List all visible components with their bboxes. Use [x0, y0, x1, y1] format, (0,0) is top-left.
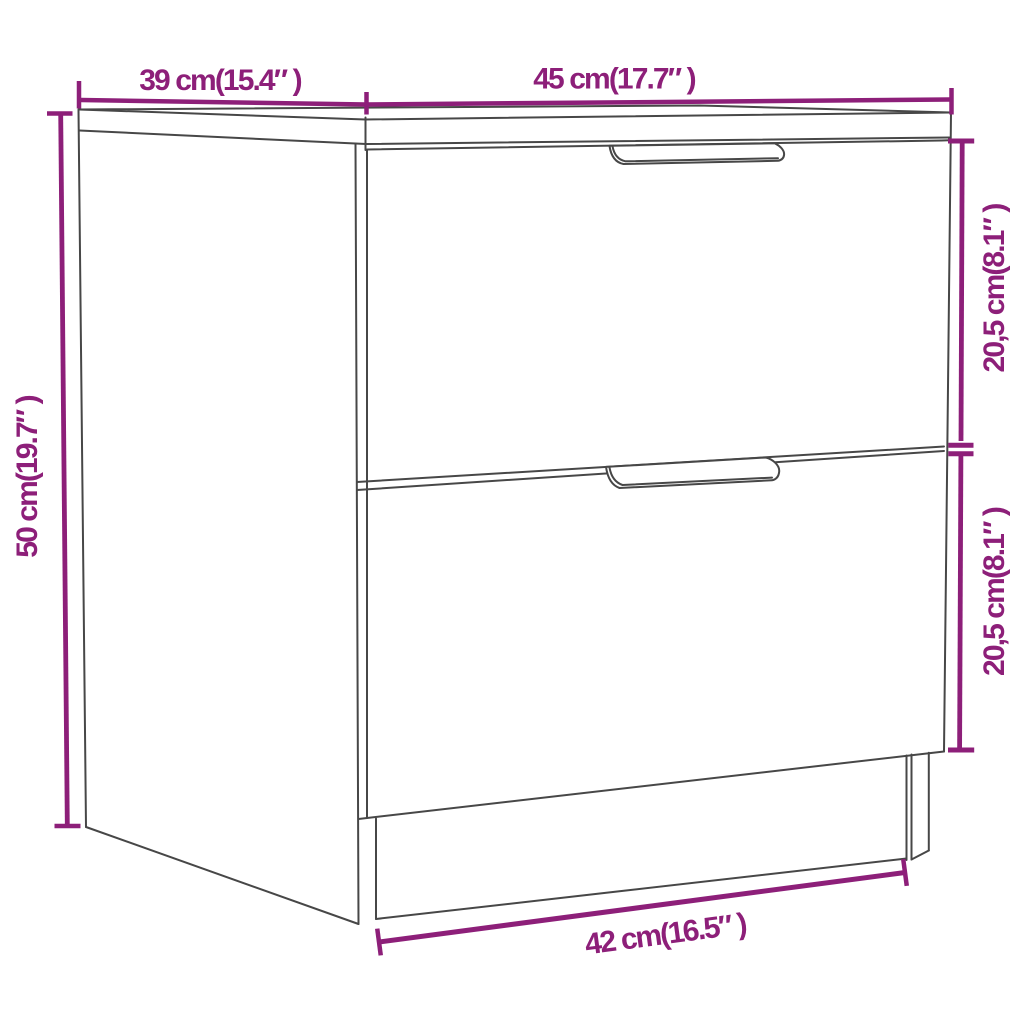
svg-text:20,5 cm(8.1″ ): 20,5 cm(8.1″ )	[978, 507, 1011, 676]
svg-text:45 cm(17.7″ ): 45 cm(17.7″ )	[533, 63, 695, 96]
svg-text:20,5 cm(8.1″ ): 20,5 cm(8.1″ )	[978, 204, 1011, 373]
svg-text:39 cm(15.4″ ): 39 cm(15.4″ )	[139, 64, 301, 97]
svg-text:50 cm(19.7″ ): 50 cm(19.7″ )	[11, 395, 44, 557]
